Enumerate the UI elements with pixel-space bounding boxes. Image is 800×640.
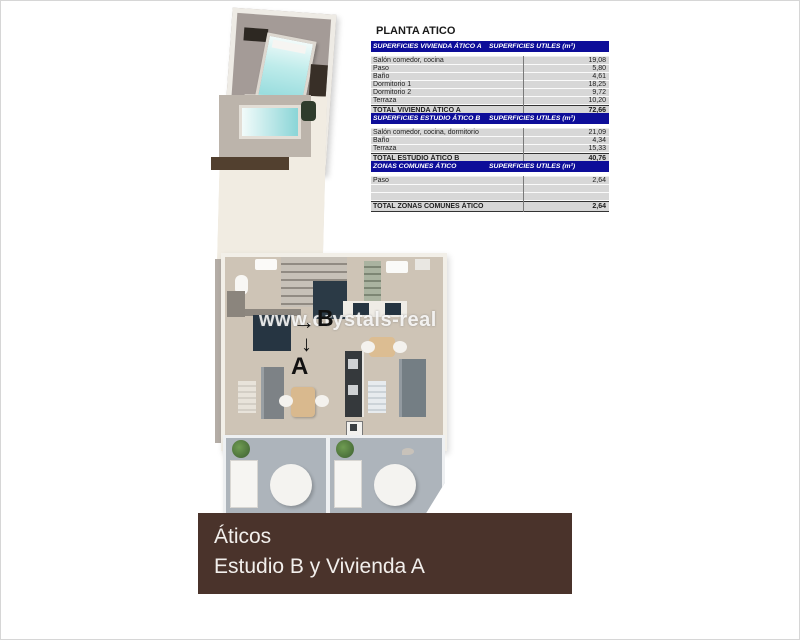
table-header: ZONAS COMUNES ÁTICO SUPERFICIES UTILES (…: [371, 161, 609, 172]
washbasin-icon: [255, 259, 277, 270]
room-label: Dormitorio 2: [373, 89, 411, 96]
room-label: Salón comedor, cocina, dormitorio: [373, 129, 479, 136]
appliance-dot: [350, 424, 357, 431]
table-row: Terraza 15,33: [371, 145, 609, 153]
room-label: Paso: [373, 177, 389, 184]
area-value: 4,61: [592, 73, 606, 80]
page-title: PLANTA ATICO: [376, 25, 455, 37]
chair: [315, 395, 329, 407]
wood-deck-strip: [211, 157, 289, 170]
table-row: Paso 5,80: [371, 65, 609, 73]
table-header-right: SUPERFICIES UTILES (m²): [489, 163, 575, 170]
washbasin-icon: [386, 261, 408, 273]
watermark: www.crystals-real: [259, 309, 443, 332]
area-value: 4,34: [592, 137, 606, 144]
room-label: Baño: [373, 73, 389, 80]
table-row: Baño 4,34: [371, 137, 609, 145]
dark-shelf: [243, 27, 268, 42]
area-value: 2,64: [592, 177, 606, 184]
area-value: 9,72: [592, 89, 606, 96]
kitchen-unit: [345, 351, 364, 417]
banner-subtitle: Estudio B y Vivienda A: [214, 555, 425, 579]
table-row: Salón comedor, cocina, dormitorio 21,09: [371, 129, 609, 137]
hob-icon: [348, 359, 358, 369]
table-row: Salón comedor, cocina 19,08: [371, 57, 609, 65]
lounger-pillow: [272, 40, 307, 54]
table-row: Terraza 10,20: [371, 97, 609, 105]
apartment-interior: [221, 253, 447, 451]
terrace-vivienda-a: [223, 435, 329, 517]
area-value: 21,09: [588, 129, 606, 136]
room-label: Paso: [373, 65, 389, 72]
table-row: Baño 4,61: [371, 73, 609, 81]
table-header-right: SUPERFICIES UTILES (m²): [489, 115, 575, 122]
table-row-empty: [371, 193, 609, 201]
table-header: SUPERFICIES VIVIENDA ÁTICO A SUPERFICIES…: [371, 41, 609, 52]
page: www.crystals-real → B ↓ A PLANTA ATICO S…: [0, 0, 800, 640]
sofa-estudio-b: [399, 359, 426, 417]
dining-table-a: [291, 387, 315, 417]
room-label: Terraza: [373, 145, 396, 152]
unit-b-label: B: [317, 305, 334, 332]
chair: [279, 395, 293, 407]
terrace-estudio-b: [327, 435, 445, 517]
chair: [361, 341, 375, 353]
round-table: [374, 464, 416, 506]
terrace-plant: [301, 101, 316, 121]
room-label: Salón comedor, cocina: [373, 57, 444, 64]
table-estudio-b: SUPERFICIES ESTUDIO ÁTICO B SUPERFICIES …: [371, 113, 609, 164]
shower-icon: [415, 259, 430, 270]
area-value: 15,33: [588, 145, 606, 152]
unit-a-label: A: [291, 353, 308, 381]
table-header-left: SUPERFICIES ESTUDIO ÁTICO B: [373, 115, 480, 122]
total-label: TOTAL ZONAS COMUNES ÁTICO: [373, 203, 483, 210]
area-value: 5,80: [592, 65, 606, 72]
total-value: 2,64: [592, 203, 606, 210]
table-row: Dormitorio 1 18,25: [371, 81, 609, 89]
table-header-left: SUPERFICIES VIVIENDA ÁTICO A: [373, 43, 482, 50]
table-vivienda-a: SUPERFICIES VIVIENDA ÁTICO A SUPERFICIES…: [371, 41, 609, 116]
area-value: 19,08: [588, 57, 606, 64]
room-label: Dormitorio 1: [373, 81, 411, 88]
round-table: [270, 464, 312, 506]
table-zonas-comunes: ZONAS COMUNES ÁTICO SUPERFICIES UTILES (…: [371, 161, 609, 212]
room-label: Baño: [373, 137, 389, 144]
sink-icon: [348, 385, 358, 395]
area-value: 18,25: [588, 81, 606, 88]
terrace-cabinet: [230, 460, 258, 508]
banner-title: Áticos: [214, 525, 271, 549]
appliance: [346, 421, 363, 436]
table-total-row: TOTAL ZONAS COMUNES ÁTICO 2,64: [371, 201, 609, 212]
sofa-vivienda-a: [261, 367, 284, 419]
sun-lounger-horizontal: [239, 105, 301, 139]
plant-icon: [336, 440, 354, 458]
area-value: 10,20: [588, 97, 606, 104]
chair: [393, 341, 407, 353]
staircase-secondary: [364, 261, 381, 301]
table-header-left: ZONAS COMUNES ÁTICO: [373, 163, 456, 170]
table-header-right: SUPERFICIES UTILES (m²): [489, 43, 575, 50]
plant-icon: [232, 440, 250, 458]
table-header: SUPERFICIES ESTUDIO ÁTICO B SUPERFICIES …: [371, 113, 609, 124]
terrace-cabinet: [334, 460, 362, 508]
rug: [368, 381, 386, 413]
wardrobe: [227, 291, 245, 317]
rug: [238, 381, 256, 413]
room-label: Terraza: [373, 97, 396, 104]
table-row: Paso 2,64: [371, 177, 609, 185]
caption-banner: Áticos Estudio B y Vivienda A: [198, 513, 572, 594]
table-row: Dormitorio 2 9,72: [371, 89, 609, 97]
table-row-empty: [371, 185, 609, 193]
bird-icon: [402, 448, 414, 455]
